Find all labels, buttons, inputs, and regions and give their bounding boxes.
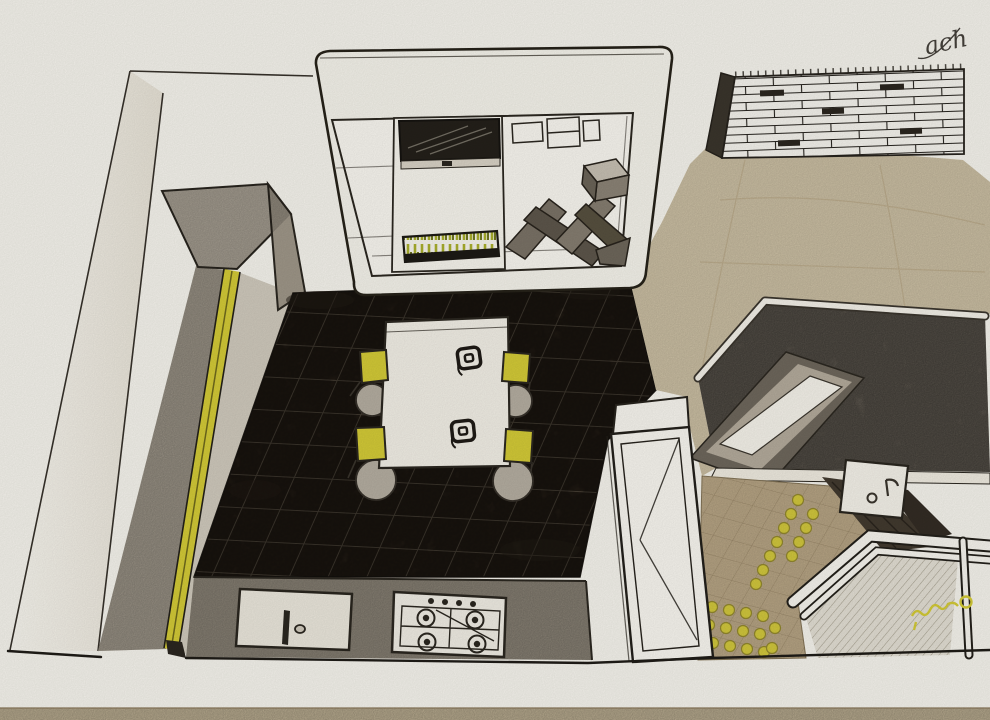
tile-shadow-blob bbox=[229, 480, 281, 500]
edge-strip-texture bbox=[0, 708, 990, 720]
dining-table bbox=[379, 317, 510, 468]
chair-back-yellow bbox=[504, 429, 533, 463]
tile-shadow-blob bbox=[286, 291, 354, 309]
shelf-box bbox=[547, 117, 580, 148]
grass-planter bbox=[403, 231, 499, 262]
floor-dot bbox=[793, 495, 804, 506]
burner-hub bbox=[424, 639, 430, 645]
sink-basin bbox=[236, 589, 352, 650]
floor-dot bbox=[770, 623, 781, 634]
dark-brick bbox=[880, 84, 904, 91]
burner-hub bbox=[474, 641, 480, 647]
floor-dot bbox=[801, 523, 812, 534]
brick-wall bbox=[706, 66, 964, 158]
floor-dot bbox=[772, 537, 783, 548]
hob-knob bbox=[442, 599, 448, 605]
hob-knob bbox=[456, 600, 462, 606]
gas-hob bbox=[392, 592, 506, 657]
floor-dot bbox=[765, 551, 776, 562]
dark-brick bbox=[900, 128, 922, 135]
shelf-box bbox=[583, 120, 600, 141]
floor-dot bbox=[787, 551, 798, 562]
floor-dot bbox=[755, 629, 766, 640]
floor-dot bbox=[808, 509, 819, 520]
floor-dot bbox=[779, 523, 790, 534]
floor-dot bbox=[758, 565, 769, 576]
sink-drain bbox=[295, 625, 305, 633]
tile-shadow-blob bbox=[500, 539, 580, 561]
floor-dot bbox=[751, 579, 762, 590]
tv-stand bbox=[442, 161, 452, 166]
dark-brick bbox=[822, 108, 844, 115]
floor-dot bbox=[741, 608, 752, 619]
dark-brick bbox=[778, 140, 800, 147]
floor-dot bbox=[721, 623, 732, 634]
chair-back-yellow bbox=[360, 350, 388, 383]
kitchen-sketch: ach bbox=[0, 0, 990, 720]
dark-brick bbox=[760, 90, 784, 97]
suspended-cabinet bbox=[316, 47, 672, 295]
burner-hub bbox=[423, 615, 429, 621]
burner-hub bbox=[472, 617, 478, 623]
chair-back-yellow bbox=[502, 352, 530, 383]
hob-knob bbox=[428, 598, 434, 604]
floor-dot bbox=[738, 626, 749, 637]
paper-edge-strip bbox=[0, 708, 990, 720]
island-counter bbox=[690, 301, 990, 486]
small-sink bbox=[840, 460, 908, 518]
floor-dot bbox=[786, 509, 797, 520]
counter-sink bbox=[236, 589, 352, 650]
hob-knob bbox=[470, 601, 476, 607]
floor-dot bbox=[742, 644, 753, 655]
shelf-box bbox=[512, 122, 543, 143]
floor-dot bbox=[724, 605, 735, 616]
floor-dot bbox=[767, 643, 778, 654]
small-sink-basin bbox=[840, 460, 908, 518]
floor-dot bbox=[794, 537, 805, 548]
floor-dot bbox=[758, 611, 769, 622]
kitchen-counter bbox=[186, 577, 592, 660]
floor-dot bbox=[725, 641, 736, 652]
chair-back-yellow bbox=[356, 427, 386, 461]
scanned-drawing: ach bbox=[0, 0, 990, 720]
